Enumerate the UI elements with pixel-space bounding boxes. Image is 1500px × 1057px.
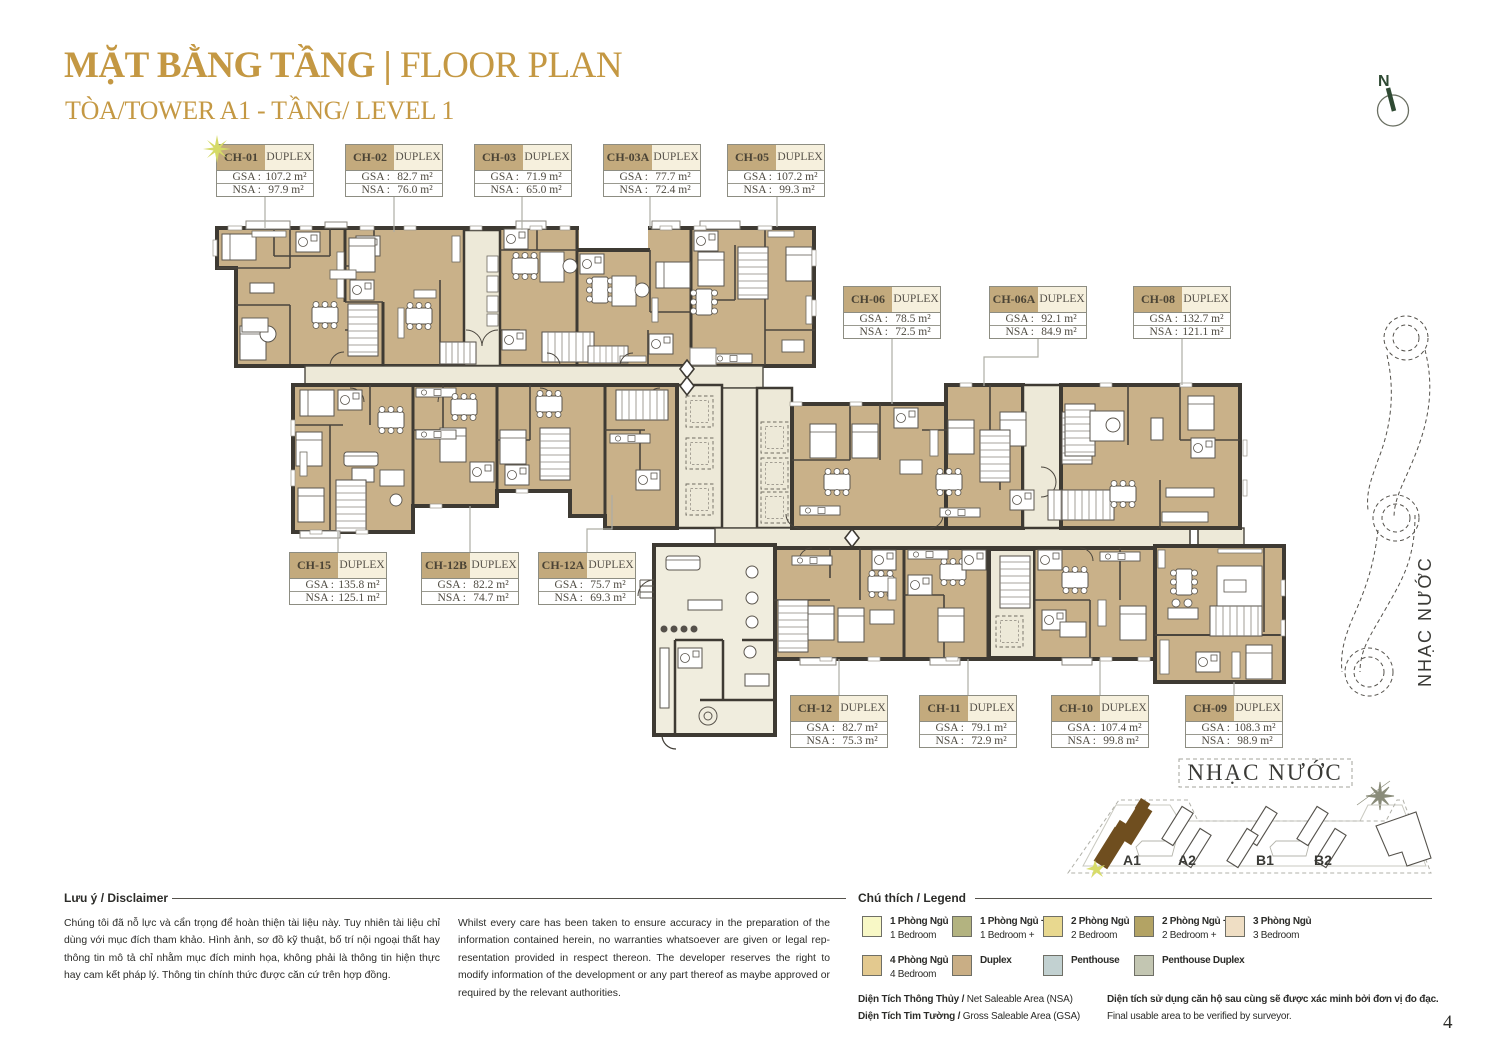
svg-text:NHẠC NƯỚC: NHẠC NƯỚC [1187,759,1342,785]
svg-text:B2: B2 [1314,852,1332,868]
svg-text:A2: A2 [1178,852,1196,868]
svg-text:N: N [1378,73,1390,90]
svg-text:B1: B1 [1256,852,1274,868]
svg-text:NHẠC NƯỚC: NHẠC NƯỚC [1414,556,1435,687]
